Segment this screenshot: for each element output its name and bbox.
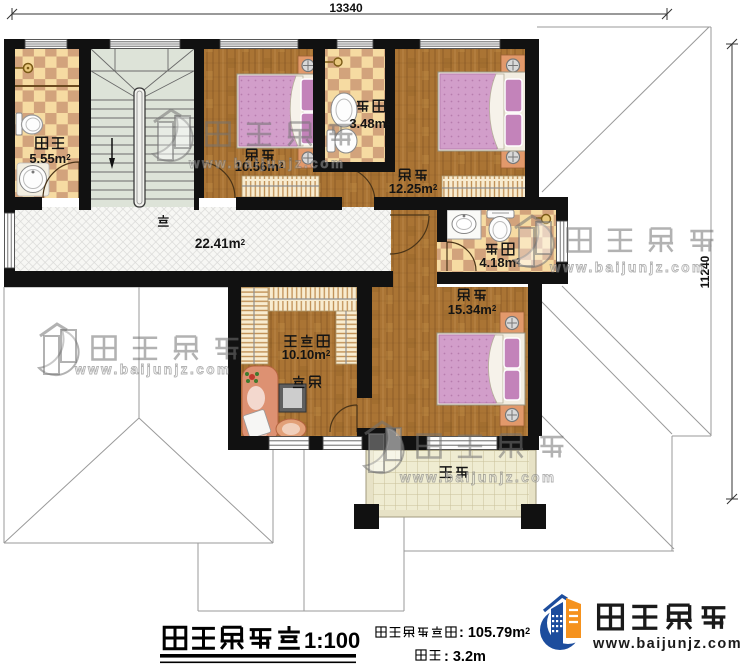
svg-text:www.baijunjz.com: www.baijunjz.com bbox=[188, 156, 346, 171]
svg-text:3.48m2: 3.48m2 bbox=[349, 116, 391, 131]
svg-text:www.baijunjz.com: www.baijunjz.com bbox=[592, 636, 742, 652]
svg-text:www.baijunjz.com: www.baijunjz.com bbox=[549, 260, 707, 275]
svg-text:: 3.2m: : 3.2m bbox=[444, 649, 486, 665]
svg-text:www.baijunjz.com: www.baijunjz.com bbox=[74, 362, 232, 377]
svg-text:www.baijunjz.com: www.baijunjz.com bbox=[399, 470, 557, 485]
svg-text:1:100: 1:100 bbox=[304, 628, 360, 653]
svg-text:4.18m2: 4.18m2 bbox=[479, 255, 521, 270]
svg-text:5.55m2: 5.55m2 bbox=[29, 151, 71, 166]
svg-text:22.41m2: 22.41m2 bbox=[195, 236, 246, 251]
svg-text:12.25m2: 12.25m2 bbox=[389, 181, 438, 196]
svg-text:13340: 13340 bbox=[329, 1, 363, 15]
svg-text:15.34m2: 15.34m2 bbox=[448, 302, 497, 317]
svg-text:10.10m2: 10.10m2 bbox=[282, 347, 331, 362]
svg-text:: 105.79m2: : 105.79m2 bbox=[459, 625, 530, 641]
